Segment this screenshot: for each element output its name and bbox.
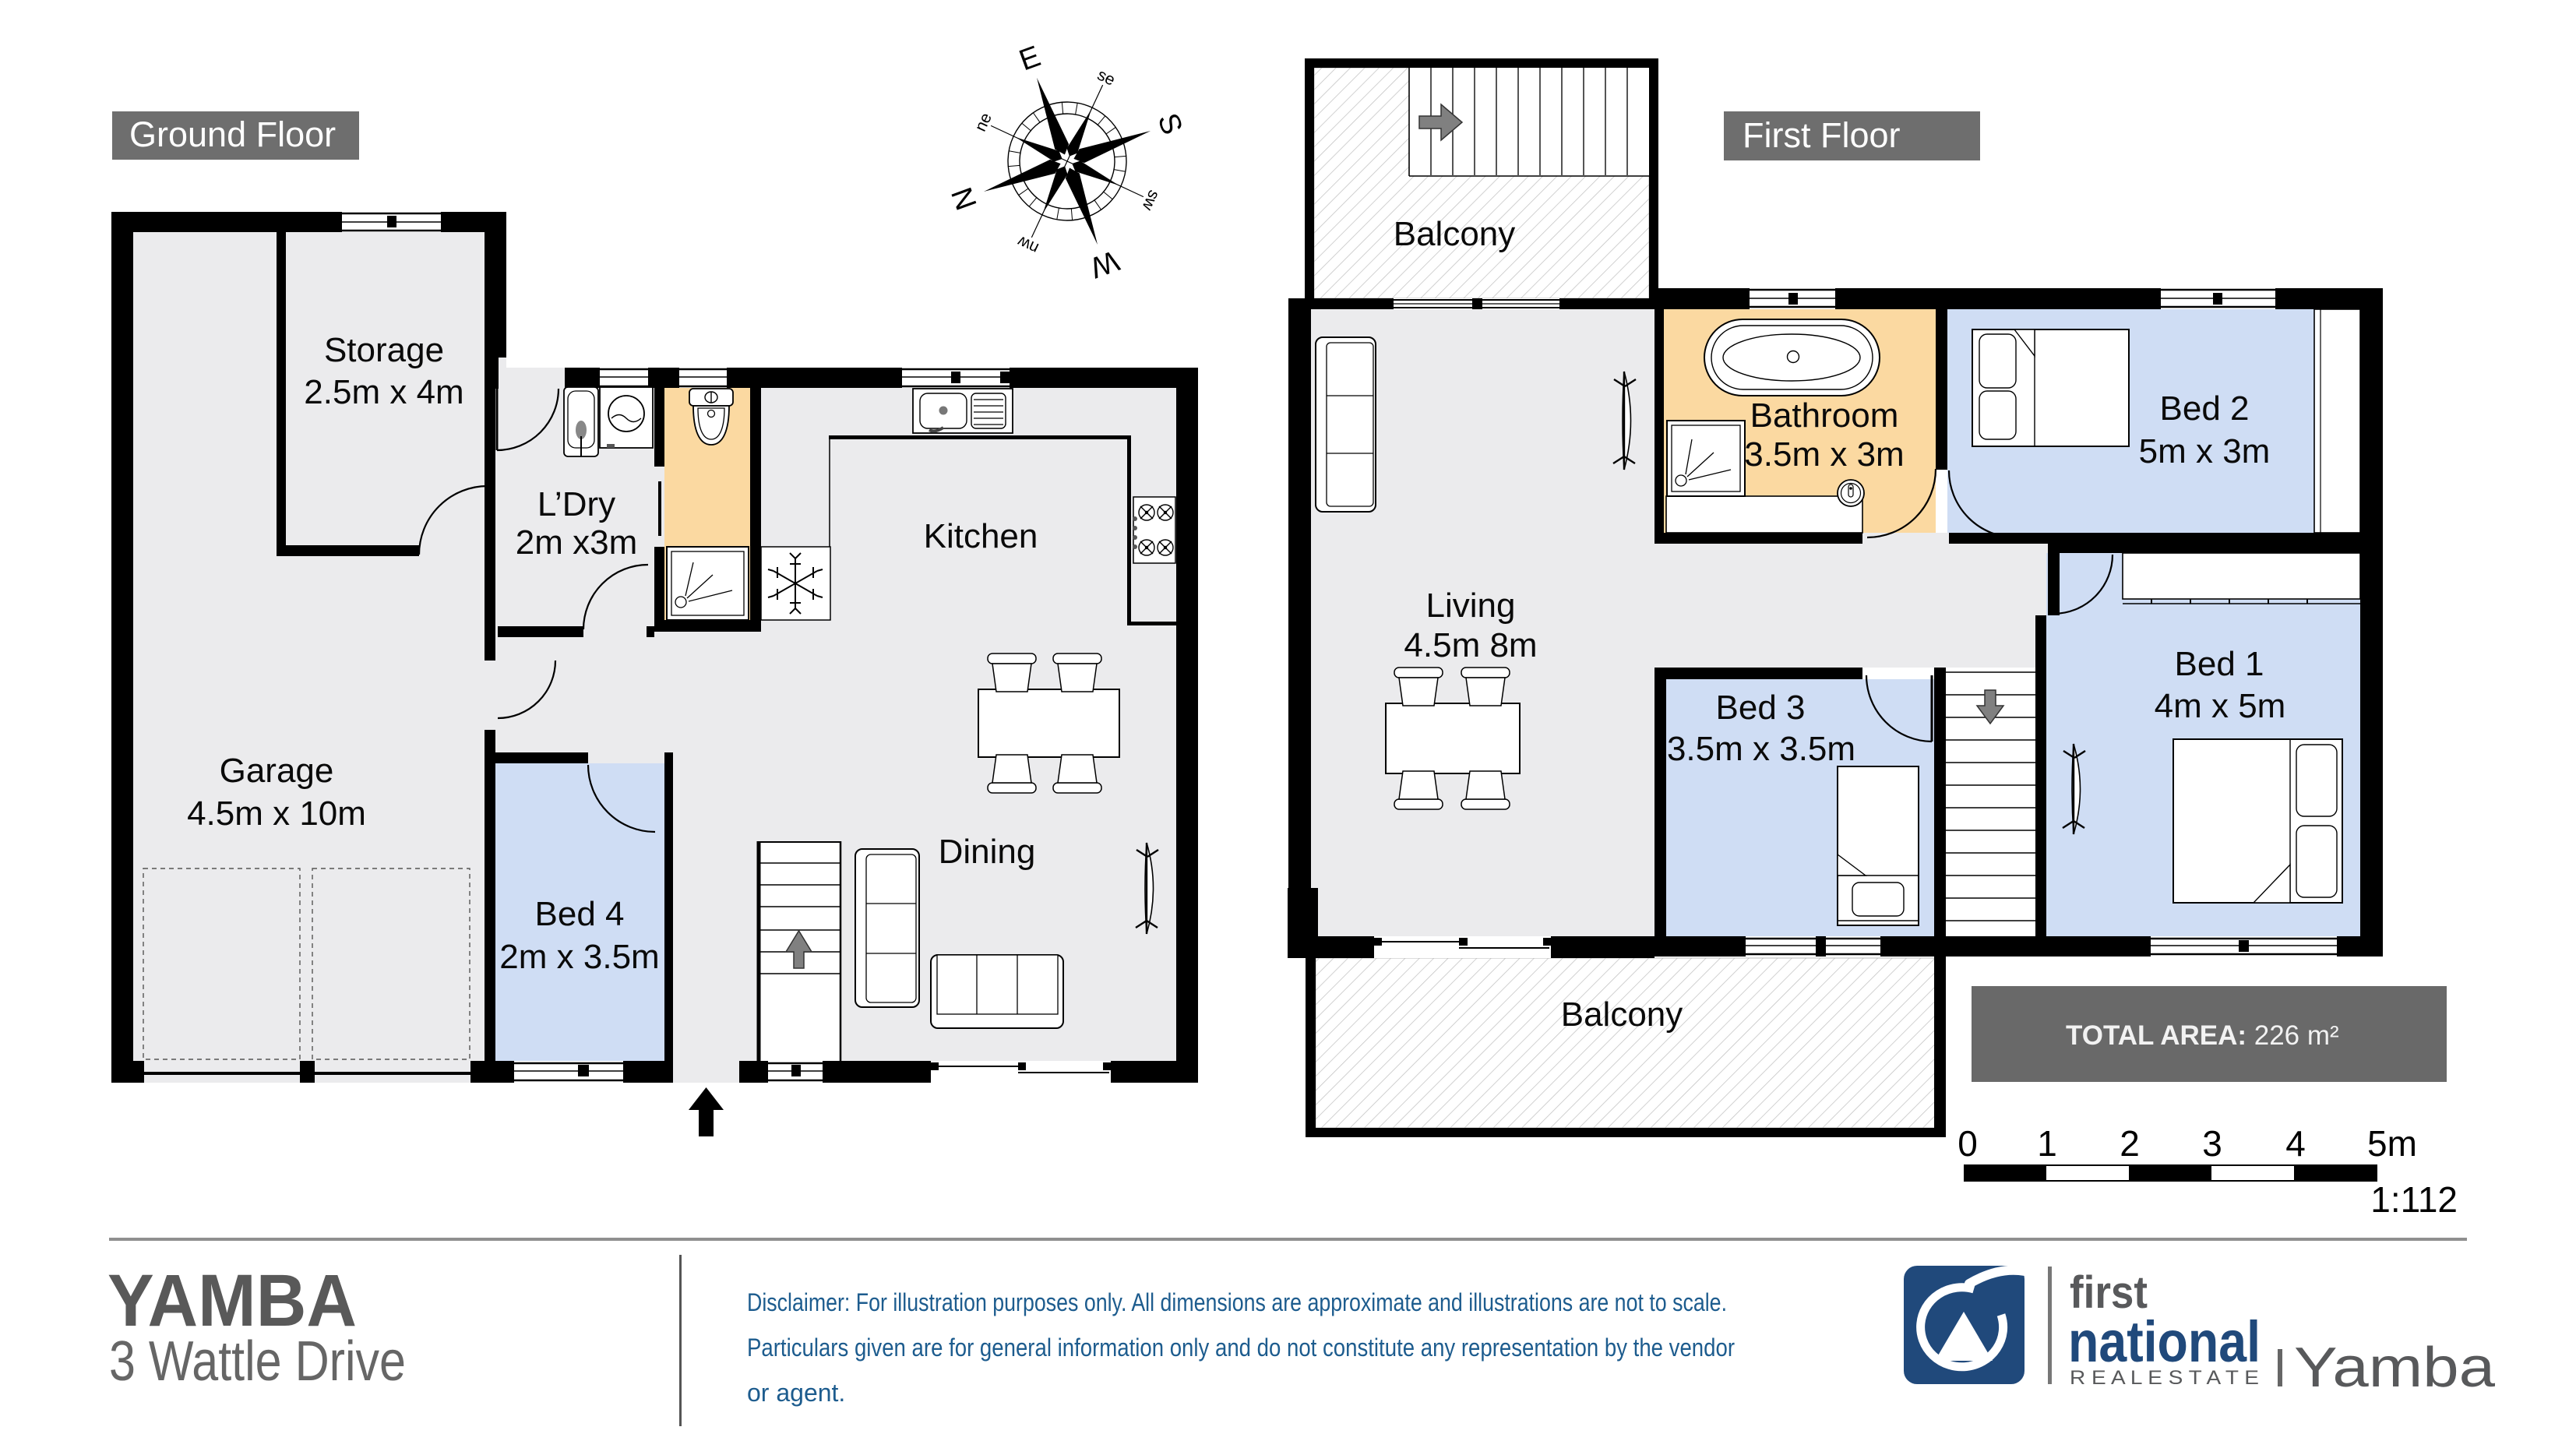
svg-text:Bed 4: Bed 4	[535, 895, 625, 933]
svg-text:3: 3	[2202, 1123, 2222, 1164]
svg-text:Particulars given are for gene: Particulars given are for general inform…	[747, 1333, 1735, 1362]
svg-text:Bathroom: Bathroom	[1750, 396, 1899, 435]
svg-text:Garage: Garage	[220, 752, 334, 790]
svg-text:4: 4	[2285, 1123, 2306, 1164]
svg-text:1: 1	[2037, 1123, 2057, 1164]
svg-text:Dining: Dining	[939, 833, 1036, 871]
svg-text:Kitchen: Kitchen	[924, 517, 1038, 555]
svg-text:2: 2	[2120, 1123, 2140, 1164]
svg-text:L’Dry: L’Dry	[537, 485, 615, 523]
svg-text:or agent.: or agent.	[747, 1379, 845, 1407]
svg-text:First Floor: First Floor	[1743, 115, 1901, 155]
svg-text:Living: Living	[1426, 587, 1516, 625]
svg-text:Bed 2: Bed 2	[2160, 389, 2250, 428]
svg-text:2m x 3.5m: 2m x 3.5m	[499, 938, 659, 976]
svg-text:Ground Floor: Ground Floor	[129, 115, 336, 154]
svg-text:3 Wattle Drive: 3 Wattle Drive	[109, 1330, 406, 1393]
svg-text:TOTAL AREA: 226 m²: TOTAL AREA: 226 m²	[2066, 1020, 2339, 1051]
svg-text:Disclaimer: For illustration p: Disclaimer: For illustration purposes on…	[747, 1288, 1727, 1316]
svg-text:Bed 3: Bed 3	[1716, 689, 1806, 727]
svg-text:Bed 1: Bed 1	[2175, 645, 2264, 683]
svg-text:2.5m x 4m: 2.5m x 4m	[304, 373, 463, 411]
svg-text:5m: 5m	[2367, 1123, 2417, 1164]
svg-text:4.5m 8m: 4.5m 8m	[1404, 626, 1537, 664]
svg-text:3.5m x 3.5m: 3.5m x 3.5m	[1667, 730, 1855, 768]
svg-text:2m x3m: 2m x3m	[516, 523, 637, 562]
svg-text:3.5m x 3m: 3.5m x 3m	[1744, 435, 1904, 474]
svg-text:Storage: Storage	[324, 331, 444, 369]
svg-text:national: national	[2068, 1309, 2261, 1374]
svg-text:Balcony: Balcony	[1394, 215, 1516, 253]
svg-text:R E A L E S T A T E: R E A L E S T A T E	[2070, 1367, 2259, 1389]
svg-text:1:112: 1:112	[2370, 1179, 2458, 1220]
svg-text:4.5m x 10m: 4.5m x 10m	[187, 794, 366, 833]
svg-text:4m x 5m: 4m x 5m	[2155, 687, 2286, 725]
svg-text:Yamba: Yamba	[2294, 1337, 2496, 1399]
svg-text:0: 0	[1958, 1123, 1978, 1164]
svg-text:Balcony: Balcony	[1561, 995, 1683, 1034]
svg-text:5m x 3m: 5m x 3m	[2139, 432, 2271, 470]
